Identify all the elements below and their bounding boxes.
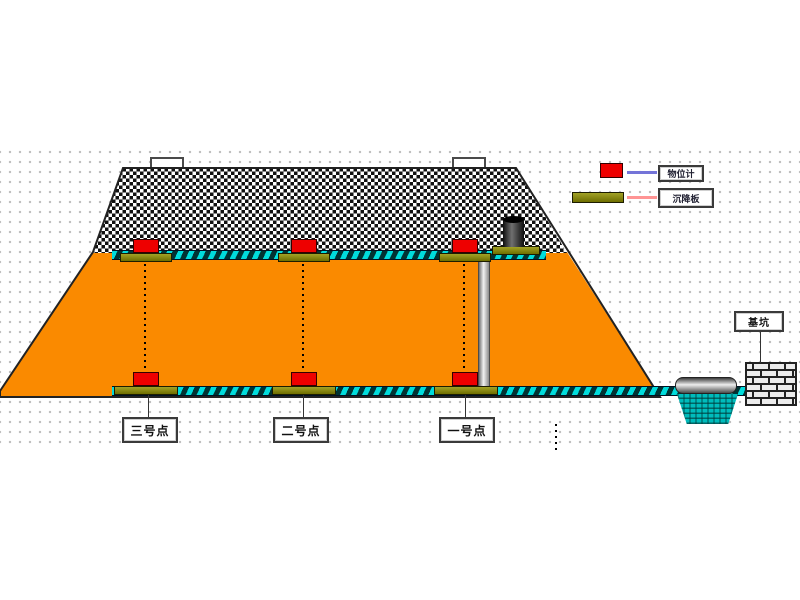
settlement-plate-top-2 — [278, 253, 330, 262]
survey-line-point3 — [144, 264, 146, 371]
legend-level-gauge-swatch — [600, 163, 623, 178]
level-gauge-top-1 — [452, 239, 478, 253]
survey-line-stub — [555, 424, 557, 450]
drain-pipe — [675, 377, 737, 394]
pit-label: 基坑 — [734, 311, 784, 332]
level-gauge-bottom-2 — [291, 372, 317, 386]
pit-label-connector — [760, 332, 761, 363]
level-gauge-bottom-1 — [452, 372, 478, 386]
drain-standpipe — [478, 258, 490, 389]
survey-line-point2 — [302, 264, 304, 371]
settlement-plate-top-3 — [120, 253, 172, 262]
point-label-1: 一号点 — [439, 417, 495, 443]
point-label-3: 三号点 — [122, 417, 178, 443]
settlement-plate-top-1 — [439, 253, 491, 262]
legend-label-settlement-plate: 沉降板 — [658, 188, 714, 208]
settlement-plate-bottom-2 — [272, 386, 336, 395]
level-gauge-top-3 — [133, 239, 159, 253]
level-gauge-bottom-3 — [133, 372, 159, 386]
point-label-3-text: 三号点 — [130, 422, 169, 439]
legend-line-pink — [627, 196, 657, 199]
riser-cylinder-cap — [503, 216, 524, 223]
point1-connector — [465, 395, 466, 418]
legend-line-blue — [627, 171, 657, 174]
water-pool — [677, 394, 738, 424]
legend-label-settlement-plate-text: 沉降板 — [672, 192, 699, 205]
settlement-plate-bottom-1 — [434, 386, 498, 395]
point-label-2-text: 二号点 — [281, 422, 320, 439]
crest-cap-right — [452, 157, 486, 169]
point-label-1-text: 一号点 — [447, 422, 486, 439]
riser-cylinder — [503, 218, 524, 247]
crest-cap-left — [150, 157, 184, 169]
point3-connector — [148, 395, 149, 418]
riser-base-plate — [492, 246, 540, 255]
legend-label-level-gauge: 物位计 — [658, 165, 704, 182]
pit-label-text: 基坑 — [748, 314, 770, 329]
point2-connector — [303, 395, 304, 418]
point-label-2: 二号点 — [273, 417, 329, 443]
level-gauge-top-2 — [291, 239, 317, 253]
legend-settlement-plate-swatch — [572, 192, 624, 203]
brick-wall — [745, 362, 797, 406]
survey-line-point1 — [463, 264, 465, 371]
hmi-canvas: 基坑 三号点 二号点 一号点 物位计 沉降板 — [0, 0, 800, 600]
legend-label-level-gauge-text: 物位计 — [667, 167, 694, 180]
settlement-plate-bottom-3 — [114, 386, 178, 395]
settlement-band-bottom — [112, 386, 746, 396]
